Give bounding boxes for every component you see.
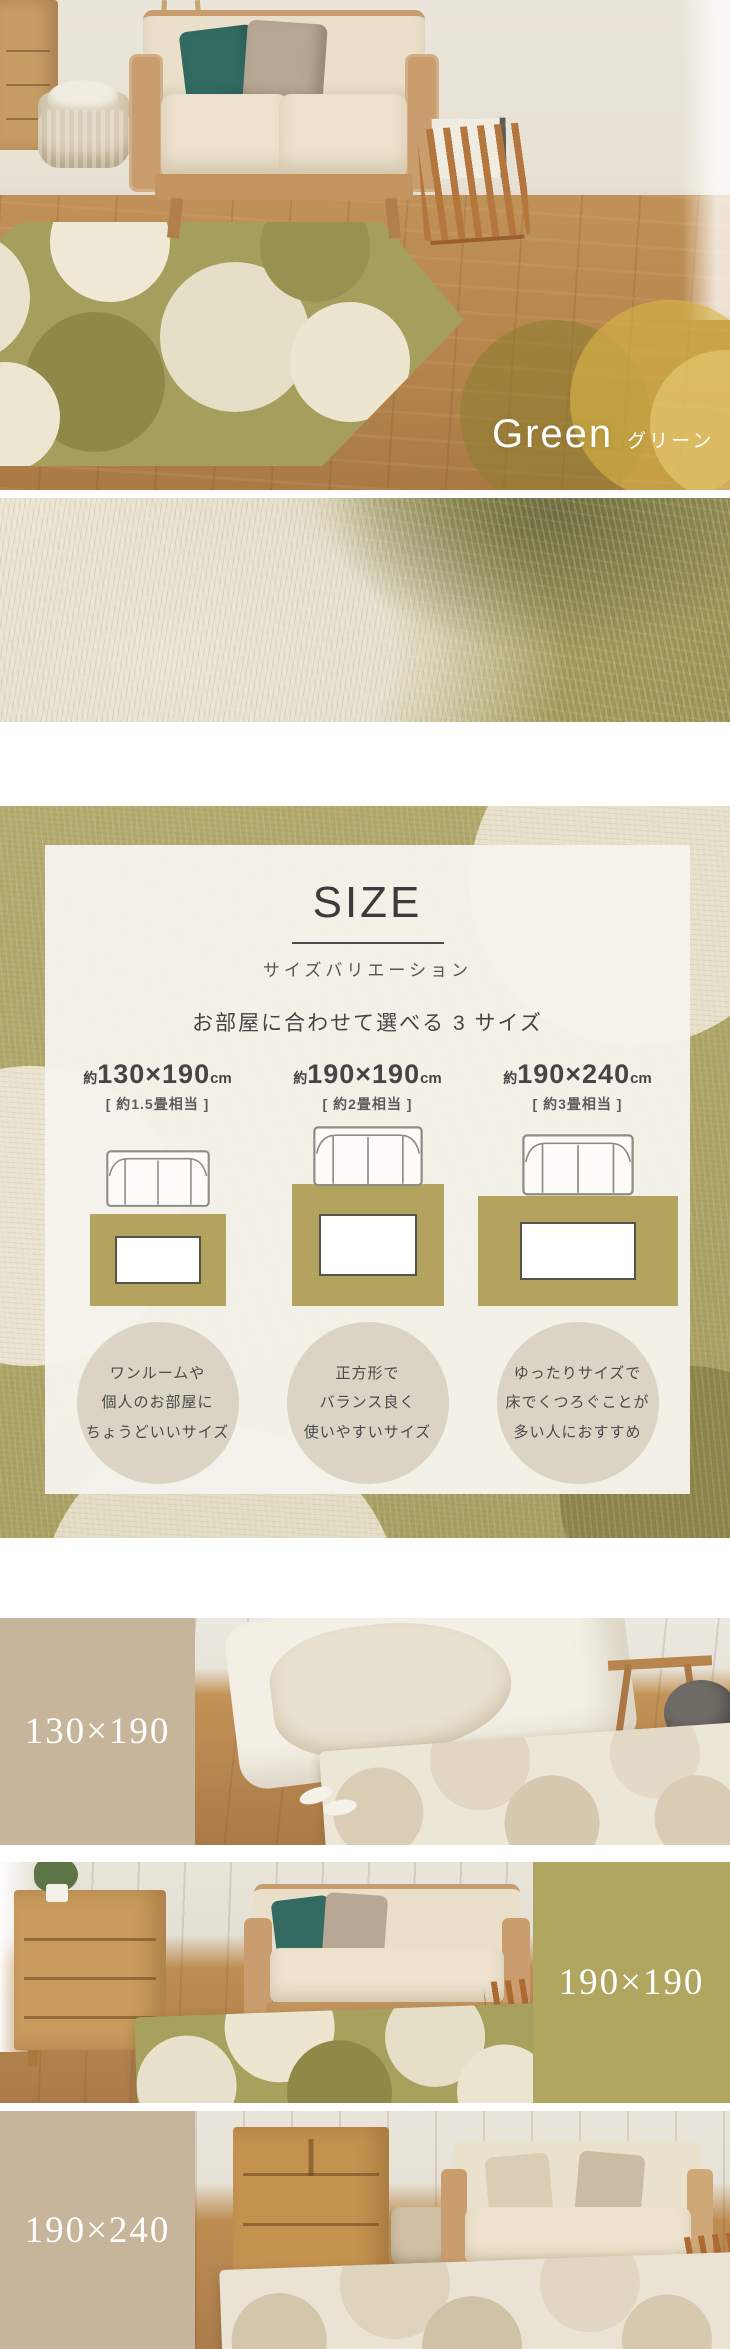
sofa-top-view-icon	[313, 1126, 423, 1187]
table-footprint	[319, 1214, 417, 1276]
desc-line: 個人のお部屋に	[101, 1388, 213, 1417]
size-row-130x190: 130×190	[0, 1618, 730, 1845]
tatami-note: [ 約1.5畳相当 ]	[55, 1094, 260, 1114]
section-gap	[0, 1538, 730, 1618]
size-prefix: 約	[293, 1070, 307, 1086]
size-lead: お部屋に合わせて選べる 3 サイズ	[45, 1007, 690, 1037]
desc-line: 多い人におすすめ	[513, 1418, 641, 1447]
color-name-en: Green	[492, 412, 613, 457]
size-label: 190×190	[559, 1961, 705, 2004]
size-label-panel: 130×190	[0, 1618, 195, 1845]
size-dims: 約190×240cm	[475, 1059, 680, 1090]
size-description: ワンルームや 個人のお部屋に ちょうどいいサイズ	[77, 1322, 239, 1484]
size-unit: cm	[210, 1070, 232, 1087]
living-room-photo-190x190	[0, 1862, 533, 2103]
living-room-photo-190x240	[195, 2111, 730, 2349]
desc-line: 正方形で	[335, 1359, 399, 1388]
size-number: 130×190	[97, 1059, 210, 1089]
size-number: 190×190	[307, 1059, 420, 1089]
tatami-note: [ 約2畳相当 ]	[265, 1094, 470, 1114]
size-unit: cm	[420, 1070, 442, 1087]
rug-footprint	[292, 1184, 444, 1306]
tatami-note: [ 約3畳相当 ]	[475, 1094, 680, 1114]
sofa-leg-left	[167, 197, 183, 238]
size-description: ゆったりサイズで 床でくつろぐことが 多い人におすすめ	[497, 1322, 659, 1484]
size-dims: 約130×190cm	[55, 1059, 260, 1090]
wooden-chest	[233, 2127, 389, 2285]
green-patterned-rug	[134, 2003, 533, 2103]
color-name-jp: グリーン	[627, 426, 714, 453]
size-label-panel: 190×240	[0, 2111, 195, 2349]
basket-with-blanket	[38, 92, 130, 168]
sofa-arm-left	[129, 54, 163, 192]
layout-diagram	[475, 1126, 680, 1308]
size-subtitle: サイズバリエーション	[45, 956, 690, 981]
section-gap	[0, 1845, 730, 1862]
sofa-seat-right	[279, 94, 407, 178]
sofa-seat	[270, 1948, 504, 2004]
desc-line: ちょうどいいサイズ	[86, 1418, 230, 1447]
size-prefix: 約	[503, 1070, 517, 1086]
bench-leg	[615, 1664, 632, 1738]
size-row-190x190: 190×190	[0, 1862, 730, 2103]
size-title: SIZE	[45, 878, 690, 928]
size-option-130x190: 約130×190cm [ 約1.5畳相当 ]	[55, 1059, 260, 1484]
table-footprint	[520, 1222, 636, 1280]
desc-line: バランス良く	[320, 1388, 416, 1417]
magazine-rack	[416, 108, 531, 241]
size-label: 190×240	[25, 2209, 171, 2252]
desc-line: 床でくつろぐことが	[505, 1388, 649, 1417]
size-description: 正方形で バランス良く 使いやすいサイズ	[287, 1322, 449, 1484]
rug-texture-closeup-photo	[0, 498, 730, 722]
size-variations: 約130×190cm [ 約1.5畳相当 ]	[45, 1037, 690, 1484]
section-gap	[0, 2103, 730, 2111]
sofa-top-view-icon	[522, 1134, 634, 1196]
rug-footprint	[90, 1214, 226, 1306]
layout-diagram	[265, 1126, 470, 1308]
sofa	[133, 2, 435, 240]
table-footprint	[115, 1236, 201, 1284]
section-gap	[0, 490, 730, 498]
hero-photo-green-rug: Green グリーン	[0, 0, 730, 490]
size-number: 190×240	[517, 1059, 630, 1089]
magazine-rack-slats	[417, 122, 531, 241]
desc-line: 使いやすいサイズ	[304, 1418, 432, 1447]
sofa-leg-right	[385, 197, 401, 238]
desc-line: ゆったりサイズで	[514, 1359, 642, 1388]
size-dims: 約190×190cm	[265, 1059, 470, 1090]
layout-diagram	[55, 1126, 260, 1308]
sofa-top-view-icon	[106, 1150, 210, 1207]
desc-line: ワンルームや	[110, 1359, 206, 1388]
product-page: Green グリーン SIZE サイズバリエーション お部屋に合わせて選べる 3…	[0, 0, 730, 2349]
bedroom-photo-130x190	[195, 1618, 730, 1845]
size-option-190x190: 約190×190cm [ 約2畳相当 ]	[265, 1059, 470, 1484]
size-label: 130×190	[25, 1710, 171, 1753]
window-light	[682, 0, 730, 320]
title-divider	[292, 942, 444, 944]
size-option-190x240: 約190×240cm [ 約3畳相当 ]	[475, 1059, 680, 1484]
size-section: SIZE サイズバリエーション お部屋に合わせて選べる 3 サイズ 約130×1…	[0, 806, 730, 1538]
section-gap	[0, 722, 730, 806]
size-label-panel: 190×190	[533, 1862, 730, 2103]
size-panel: SIZE サイズバリエーション お部屋に合わせて選べる 3 サイズ 約130×1…	[45, 845, 690, 1494]
size-row-190x240: 190×240	[0, 2111, 730, 2349]
potted-plant	[34, 1862, 78, 1892]
color-label-badge: Green グリーン	[470, 340, 730, 490]
size-unit: cm	[630, 1070, 652, 1087]
rug-footprint	[478, 1196, 678, 1306]
ivory-rug	[219, 2252, 730, 2349]
size-prefix: 約	[83, 1070, 97, 1086]
sofa-front-rail	[155, 174, 413, 200]
sofa-seat-left	[161, 94, 289, 178]
